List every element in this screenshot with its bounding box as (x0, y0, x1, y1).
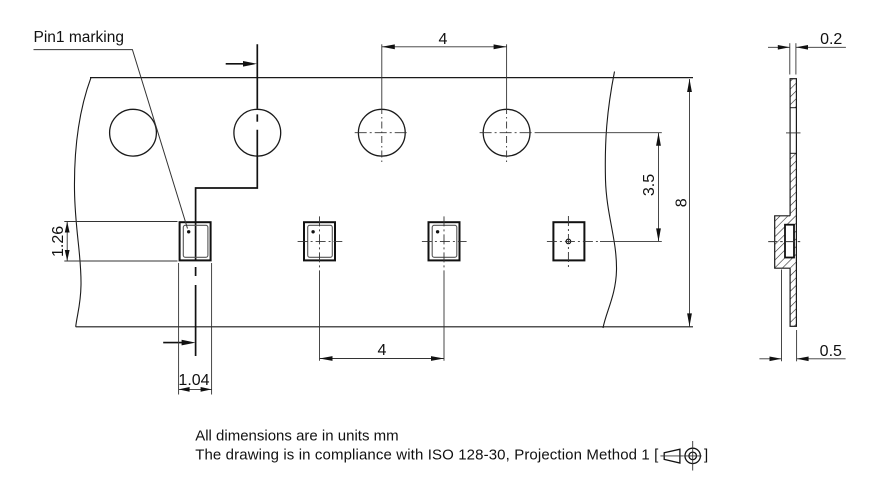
svg-text:The drawing is in compliance w: The drawing is in compliance with ISO 12… (195, 447, 659, 464)
svg-text:Pin1 marking: Pin1 marking (34, 29, 124, 46)
svg-text:1.26: 1.26 (50, 226, 67, 257)
svg-text:]: ] (704, 447, 708, 464)
svg-text:0.5: 0.5 (820, 343, 842, 360)
svg-text:4: 4 (378, 342, 387, 359)
svg-text:0.2: 0.2 (820, 31, 842, 48)
svg-text:8: 8 (674, 198, 691, 207)
svg-text:4: 4 (439, 31, 448, 48)
svg-text:All dimensions are in units mm: All dimensions are in units mm (195, 428, 398, 445)
svg-text:3.5: 3.5 (641, 174, 658, 196)
svg-text:1.04: 1.04 (178, 372, 209, 389)
